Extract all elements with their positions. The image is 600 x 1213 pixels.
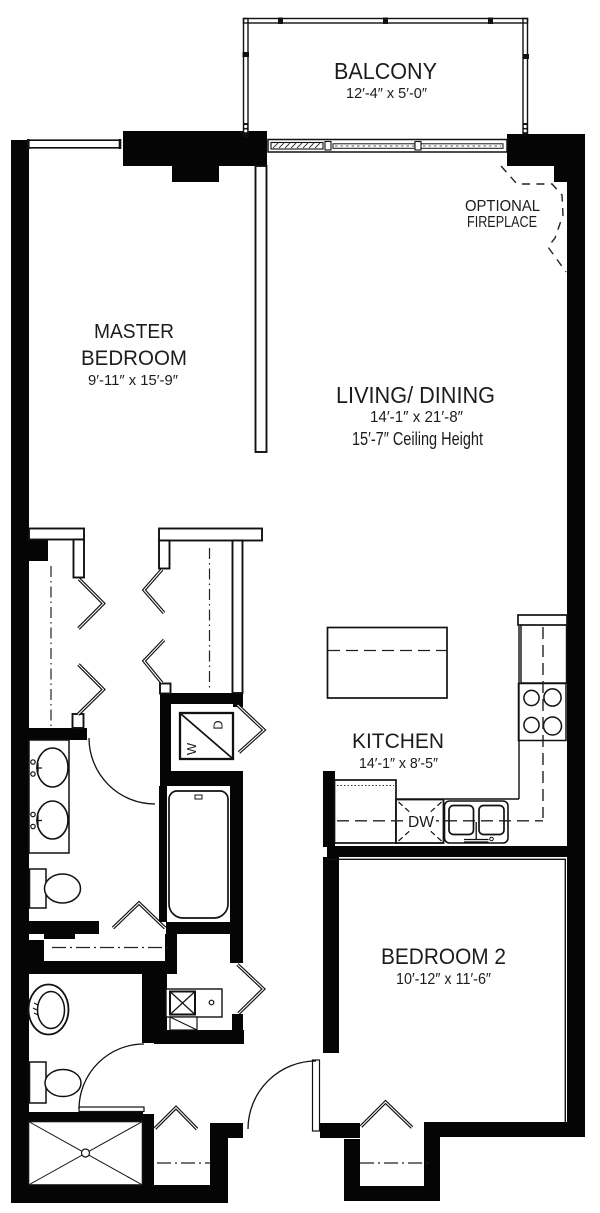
svg-text:D: D bbox=[211, 720, 226, 729]
svg-text:15′-7″ Ceiling Height: 15′-7″ Ceiling Height bbox=[352, 429, 483, 449]
svg-text:12′-4″ x 5′-0″: 12′-4″ x 5′-0″ bbox=[346, 85, 428, 102]
svg-text:DW: DW bbox=[408, 814, 435, 831]
svg-text:10′-12″ x 11′-6″: 10′-12″ x 11′-6″ bbox=[396, 971, 491, 988]
svg-text:9′-11″ x 15′-9″: 9′-11″ x 15′-9″ bbox=[88, 372, 179, 389]
svg-text:14′-1″ x 8′-5″: 14′-1″ x 8′-5″ bbox=[359, 756, 438, 772]
svg-text:BEDROOM: BEDROOM bbox=[81, 347, 187, 370]
svg-text:FIREPLACE: FIREPLACE bbox=[467, 214, 537, 231]
svg-text:MASTER: MASTER bbox=[94, 321, 174, 343]
svg-text:14′-1″ x 21′-8″: 14′-1″ x 21′-8″ bbox=[370, 409, 463, 426]
svg-text:LIVING/ DINING: LIVING/ DINING bbox=[336, 382, 495, 408]
svg-text:KITCHEN: KITCHEN bbox=[352, 730, 444, 753]
svg-text:OPTIONAL: OPTIONAL bbox=[465, 198, 540, 215]
svg-text:W: W bbox=[184, 742, 199, 755]
svg-text:BEDROOM 2: BEDROOM 2 bbox=[381, 944, 506, 969]
svg-text:BALCONY: BALCONY bbox=[334, 58, 437, 84]
